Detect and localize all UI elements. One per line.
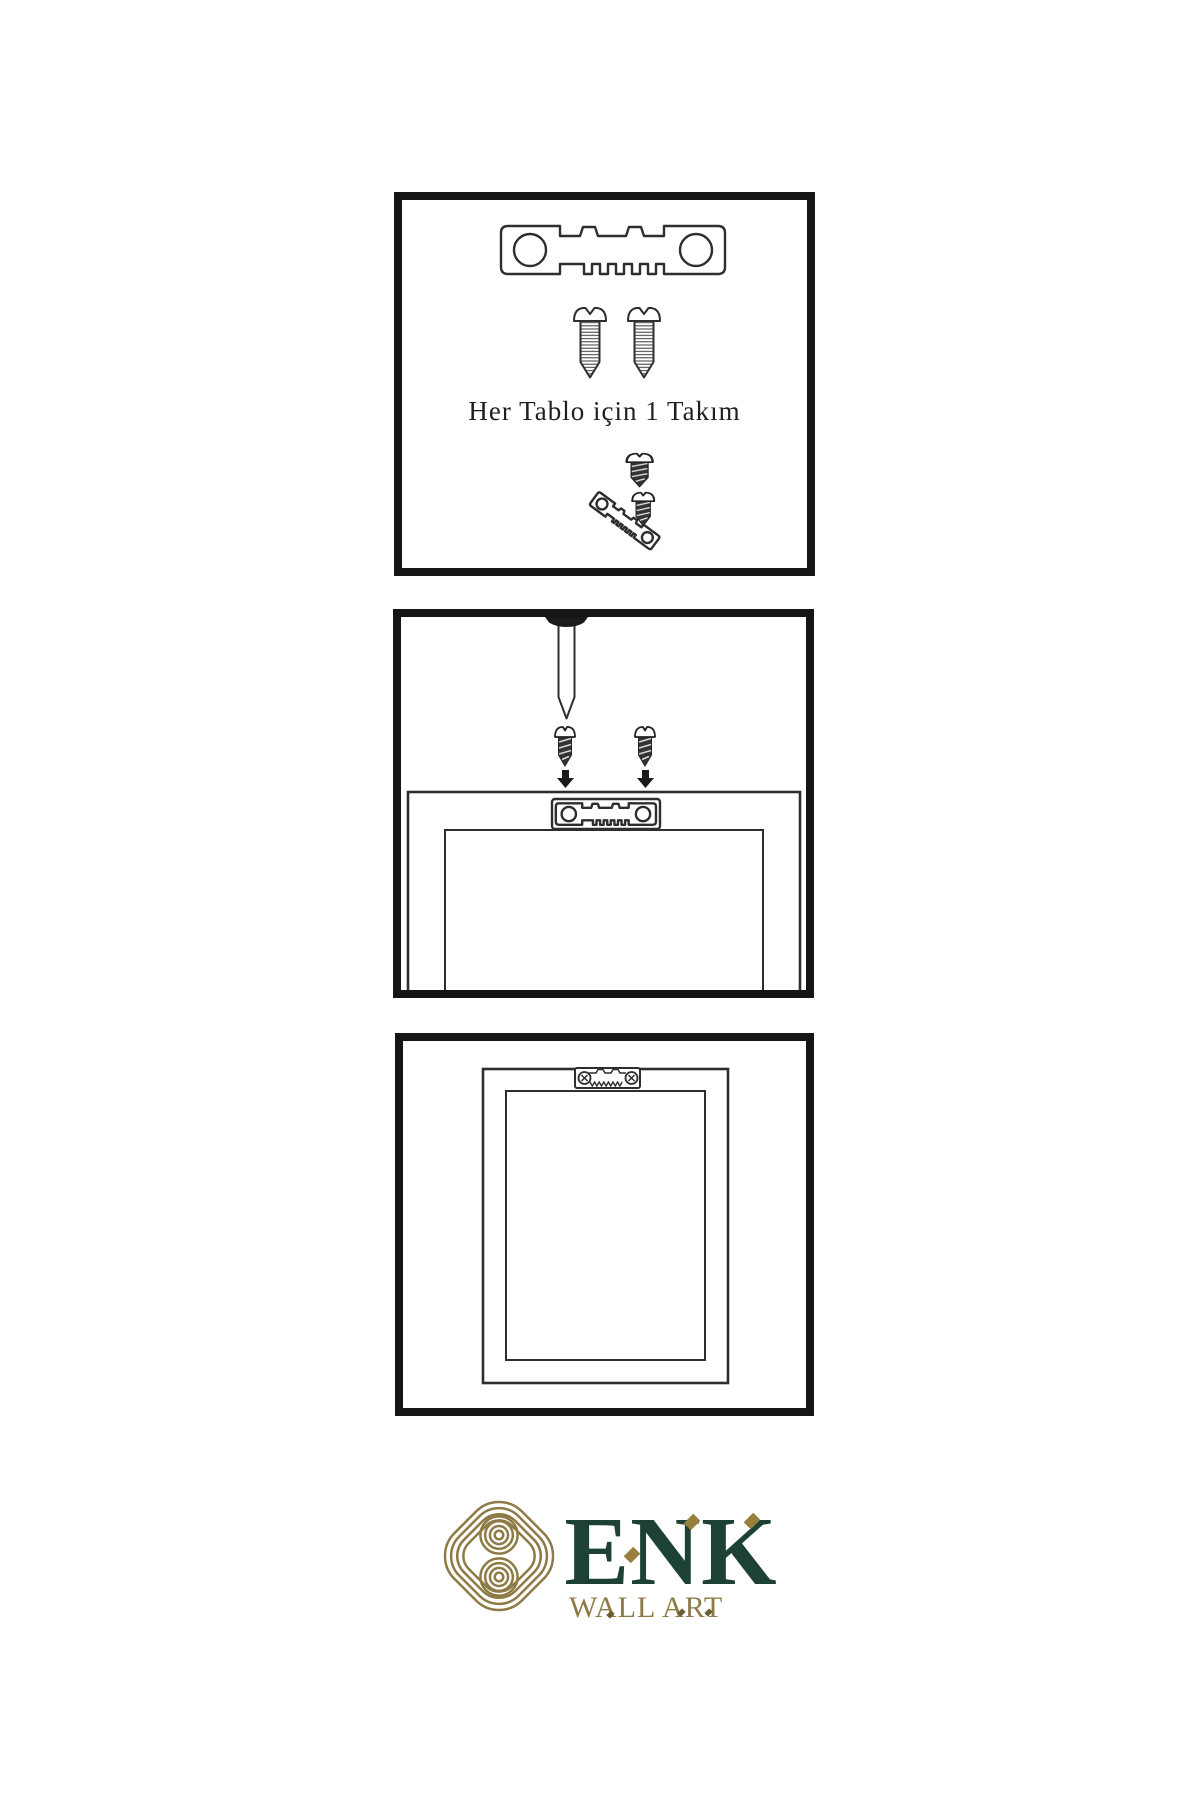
hardware-kit-illustration [402, 200, 807, 568]
page: { "panels": [ { "id": "kit", "caption": … [0, 0, 1200, 1800]
hanger-mounting-demo [589, 454, 660, 550]
panel-hardware-kit [394, 192, 815, 576]
sawtooth-hanger-icon [501, 226, 725, 274]
mounting-illustration [401, 617, 806, 990]
knot-logo-icon [437, 1488, 561, 1624]
arrow-down-icon [557, 770, 574, 788]
screw-head-icon [626, 1072, 638, 1084]
nail-icon [545, 617, 588, 719]
mounted-hanger-icon [575, 1068, 640, 1088]
screw-icon [628, 308, 660, 378]
screw-head-icon [579, 1072, 591, 1084]
kit-caption: Her Tablo için 1 Takım [394, 396, 815, 427]
panel-mounting-step [393, 609, 814, 998]
brand-subtitle: WALL ART [569, 1593, 789, 1623]
dark-screw-icon [627, 454, 653, 487]
sawtooth-hanger-plate-icon [552, 799, 660, 829]
panel-hung-frame [395, 1033, 814, 1416]
screw-icon [574, 308, 606, 378]
arrow-down-icon [637, 770, 654, 788]
frame-front-icon [483, 1069, 728, 1383]
dark-screw-icon [555, 727, 575, 766]
dark-screw-icon [635, 727, 655, 766]
hung-frame-illustration [403, 1041, 806, 1408]
